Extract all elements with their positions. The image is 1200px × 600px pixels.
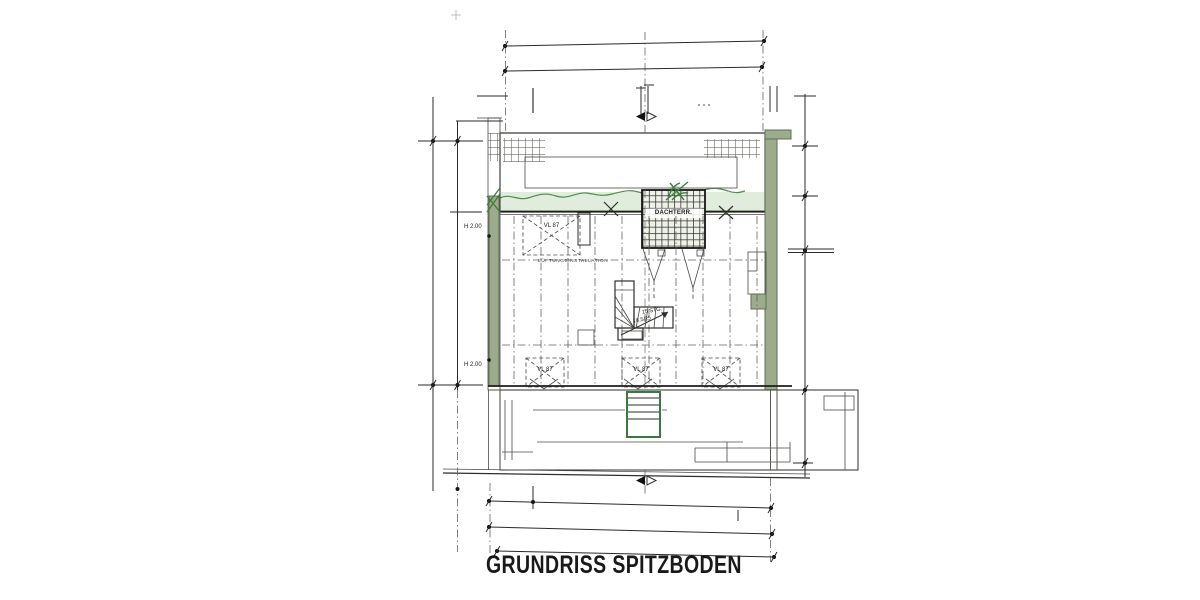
roof-strip-top bbox=[500, 133, 765, 219]
roof-window-top bbox=[523, 216, 580, 255]
stair-skylight bbox=[625, 391, 662, 438]
dimensions-top bbox=[451, 10, 777, 133]
roof-terrace bbox=[642, 182, 705, 300]
rafter-grid bbox=[502, 216, 763, 384]
height-label-upper: H 2.00 bbox=[464, 224, 482, 230]
roof-window-row bbox=[526, 358, 740, 389]
roof-window-label-1: VL 87 bbox=[526, 367, 564, 373]
roof-window-label-3: VL 87 bbox=[702, 367, 740, 373]
height-label-lower: H 2.00 bbox=[464, 362, 482, 368]
vent-label: LÜFTUNGSINSTALLATION bbox=[538, 260, 608, 265]
section-marker-bottom bbox=[636, 476, 656, 485]
section-marker-top bbox=[636, 112, 656, 121]
roof-strip-bottom bbox=[443, 390, 858, 478]
terrace-label: DACHTERR. bbox=[645, 210, 702, 216]
floorplan-linework bbox=[0, 0, 1200, 600]
dimensions-right bbox=[788, 94, 834, 477]
attic-room bbox=[487, 213, 763, 389]
roof-window-label-top: VL 87 bbox=[523, 223, 580, 229]
roof-window-label-2: VL 87 bbox=[622, 367, 660, 373]
wall-left bbox=[477, 118, 502, 390]
dimensions-bottom bbox=[486, 478, 777, 562]
floorplan-sheet: GRUNDRISS SPITZBODEN DACHTERR. VL 87 VL … bbox=[0, 0, 1200, 600]
plan-title: GRUNDRISS SPITZBODEN bbox=[486, 553, 742, 578]
